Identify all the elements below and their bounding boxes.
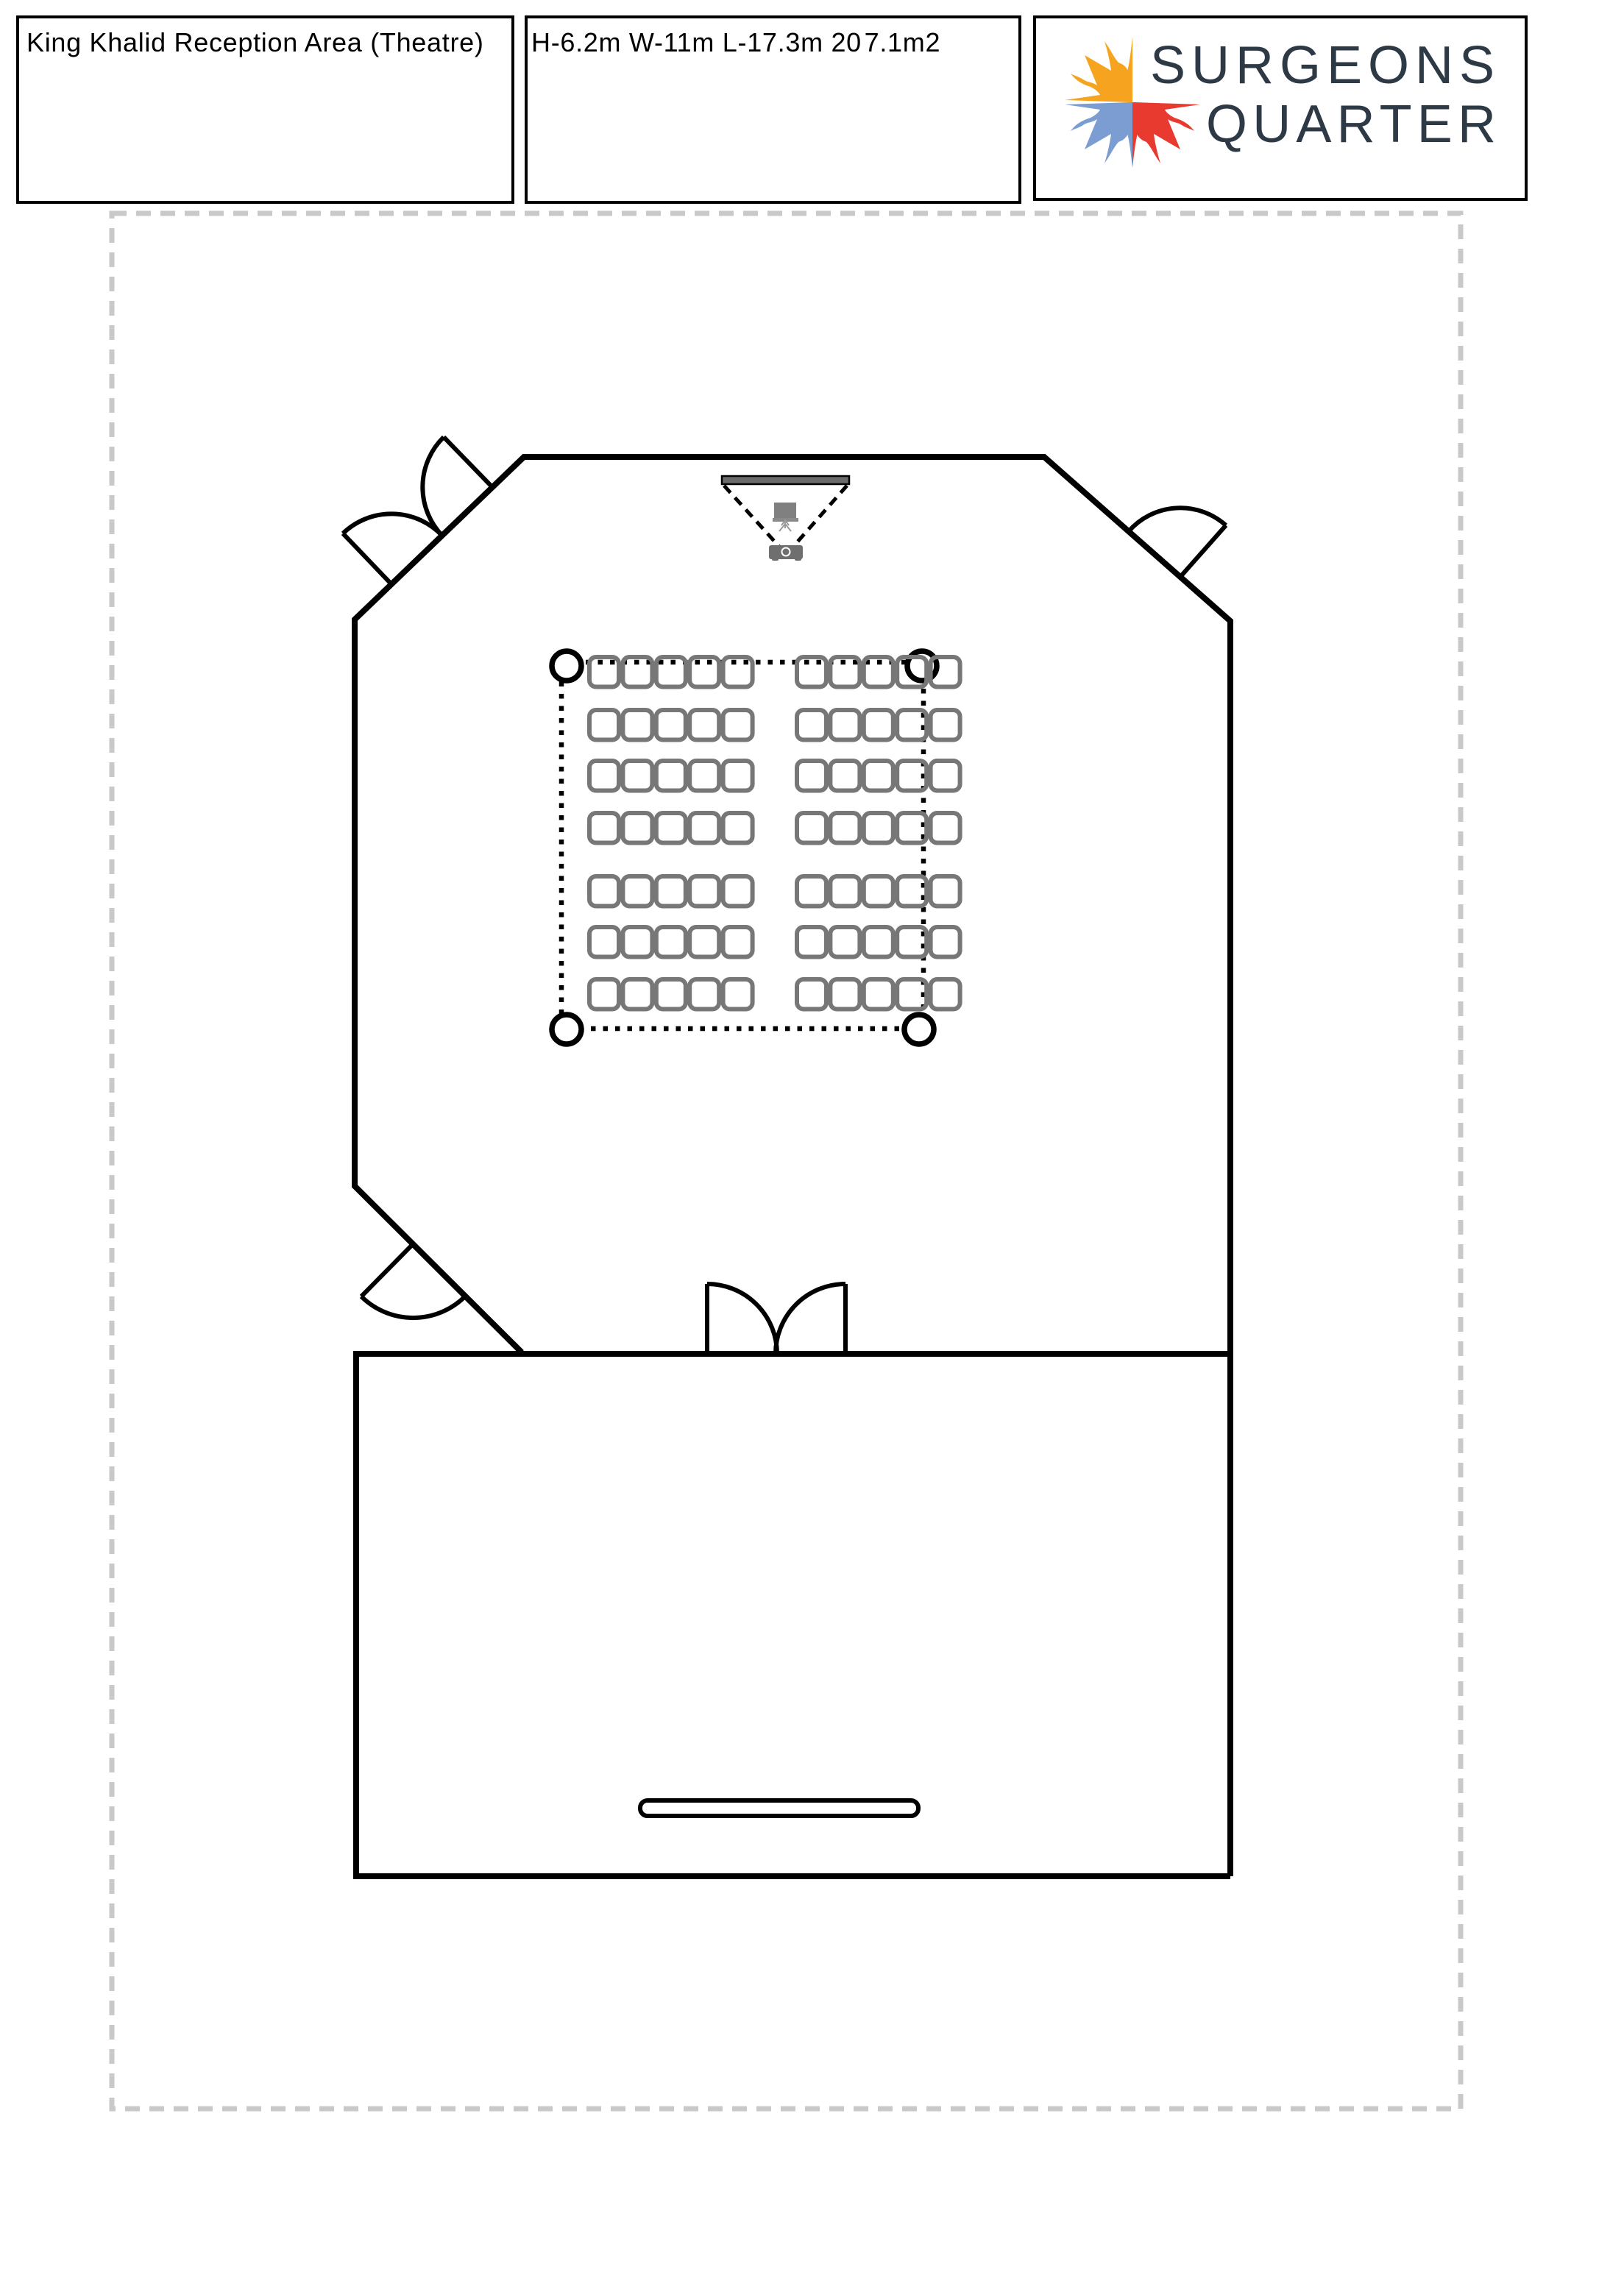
svg-text:QUARTER: QUARTER <box>1206 95 1496 154</box>
svg-text:SURGEONS: SURGEONS <box>1150 36 1494 95</box>
